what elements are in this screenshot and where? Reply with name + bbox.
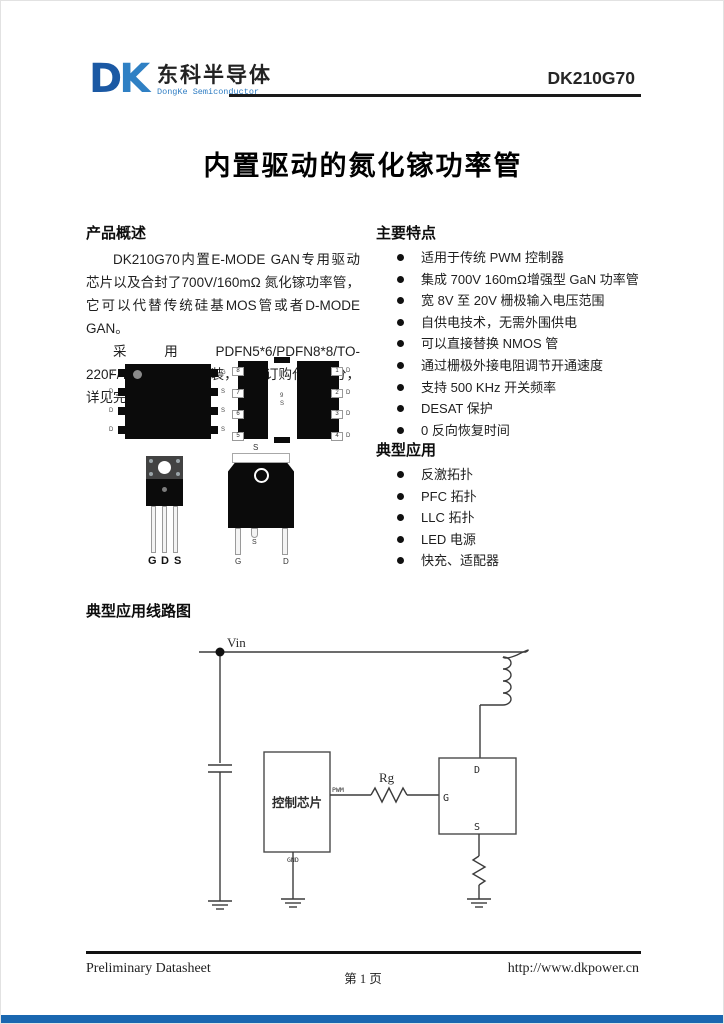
- to220-body-dot: [162, 487, 167, 492]
- pdfn-notch-bottom: [274, 437, 290, 443]
- bullet-icon: [397, 297, 404, 304]
- drain-pin-label: D: [474, 765, 480, 776]
- bullet-icon: [397, 319, 404, 326]
- to220-leg: [162, 506, 167, 553]
- feature-item: DESAT 保护: [394, 402, 676, 416]
- application-item: LLC 拓扑: [394, 511, 676, 525]
- pin1-dot-icon: [133, 370, 142, 379]
- to220-leg: [173, 506, 178, 553]
- logo-dk-icon: DK: [89, 56, 147, 102]
- to252-pin-label-d: D: [283, 557, 289, 566]
- to252-pin-label-g: G: [235, 557, 241, 566]
- pdfn-pin-label: D: [109, 426, 113, 434]
- pdfn-pin-label: D: [109, 407, 113, 415]
- circuit-heading: 典型应用线路图: [86, 600, 191, 621]
- center-pad-label: 9: [280, 393, 283, 400]
- to220-pin-label-s: S: [174, 555, 181, 567]
- to220-body: [146, 479, 183, 506]
- pad-number: 3: [331, 410, 343, 419]
- bullet-icon: [397, 471, 404, 478]
- to252-leg-s: [251, 528, 258, 538]
- pdfn-pin-label: D: [109, 388, 113, 396]
- source-pin-label: S: [474, 822, 480, 833]
- to220-corner-dot: [176, 459, 180, 463]
- feature-item: 集成 700V 160mΩ增强型 GaN 功率管: [394, 273, 676, 287]
- part-number: DK210G70: [547, 68, 635, 89]
- application-item: 快充、适配器: [394, 554, 676, 568]
- company-logo: DK: [89, 59, 147, 99]
- bullet-icon: [397, 254, 404, 261]
- datasheet-page: DK 东科半导体 DongKe Semiconductor DK210G70 内…: [0, 0, 724, 1024]
- pad-number: 5: [232, 432, 244, 441]
- pdfn-pin: [118, 369, 125, 377]
- to220-leg: [151, 506, 156, 553]
- bullet-icon: [397, 362, 404, 369]
- pad-letter: D: [346, 368, 350, 375]
- pdfn-pin: [211, 369, 218, 377]
- overview-paragraph-1: DK210G70内置E-MODE GAN专用驱动芯片以及合封了700V/160m…: [86, 248, 360, 340]
- to252-circle-mark-icon: [254, 468, 269, 483]
- center-pad-label: S: [280, 401, 284, 408]
- pad-letter: D: [346, 411, 350, 418]
- feature-item: 适用于传统 PWM 控制器: [394, 251, 676, 265]
- to220-pin-label-d: D: [161, 555, 169, 567]
- vin-node-dot: [216, 648, 225, 657]
- pdfn-pin: [118, 426, 125, 434]
- gate-pin-label: G: [443, 793, 449, 804]
- feature-item: 可以直接替换 NMOS 管: [394, 337, 676, 351]
- vin-label: Vin: [227, 635, 246, 650]
- to220-corner-dot: [149, 459, 153, 463]
- page-title: 内置驱动的氮化镓功率管: [1, 144, 724, 183]
- bullet-icon: [397, 276, 404, 283]
- footer-website-url: http://www.dkpower.cn: [508, 961, 639, 977]
- bullet-icon: [397, 557, 404, 564]
- header-rule: [229, 94, 641, 97]
- to252-leg-g: [235, 528, 241, 555]
- pdfn-pin-label: G: [221, 369, 226, 377]
- pdfn-pin-label: S: [221, 388, 225, 396]
- application-item: 反激拓扑: [394, 468, 676, 482]
- bullet-icon: [397, 493, 404, 500]
- bullet-icon: [397, 536, 404, 543]
- rg-label: Rg: [379, 770, 395, 785]
- feature-item: 宽 8V 至 20V 栅极输入电压范围: [394, 294, 676, 308]
- feature-item: 0 反向恢复时间: [394, 424, 676, 438]
- page-bottom-accent-bar: [1, 1015, 724, 1024]
- control-chip-label: 控制芯片: [272, 795, 322, 810]
- applications-list: 反激拓扑 PFC 拓扑 LLC 拓扑 LED 电源 快充、适配器: [394, 468, 676, 576]
- pdfn-pin: [118, 407, 125, 415]
- to220-pin-label-g: G: [148, 555, 157, 567]
- overview-heading: 产品概述: [86, 222, 146, 243]
- to220-mount-hole-icon: [158, 461, 171, 474]
- pdfn-pin: [118, 388, 125, 396]
- application-item: PFC 拓扑: [394, 490, 676, 504]
- gnd-pin-label: GND: [287, 856, 299, 864]
- to220-corner-dot: [149, 472, 153, 476]
- pdfn-pin: [211, 407, 218, 415]
- to252-tab: [232, 453, 290, 463]
- bullet-icon: [397, 384, 404, 391]
- feature-item: 自供电技术，无需外围供电: [394, 316, 676, 330]
- features-list: 适用于传统 PWM 控制器 集成 700V 160mΩ增强型 GaN 功率管 宽…: [394, 251, 676, 445]
- to252-pin-label-s: S: [252, 539, 257, 546]
- to220-corner-dot: [176, 472, 180, 476]
- company-name-block: 东科半导体 DongKe Semiconductor: [157, 65, 272, 97]
- bullet-icon: [397, 405, 404, 412]
- application-circuit-diagram: Vin 控制芯片 PWM GND Rg D G S: [181, 631, 551, 923]
- pad-number: 2: [331, 389, 343, 398]
- pdfn-pin-label: S: [221, 426, 225, 434]
- pdfn-pin-label: S: [221, 407, 225, 415]
- pad-number: 6: [232, 410, 244, 419]
- pwm-pin-label: PWM: [332, 786, 344, 794]
- features-heading: 主要特点: [376, 222, 436, 243]
- footer-rule: [86, 951, 641, 954]
- pdfn-notch-top: [274, 357, 290, 363]
- pad-number: 4: [331, 432, 343, 441]
- to252-leg-d: [282, 528, 288, 555]
- pad-number: 7: [232, 389, 244, 398]
- company-name-cn: 东科半导体: [157, 65, 272, 87]
- to252-tab-label: S: [253, 443, 258, 452]
- bullet-icon: [397, 514, 404, 521]
- bullet-icon: [397, 340, 404, 347]
- pad-letter: D: [346, 390, 350, 397]
- feature-item: 通过栅极外接电阻调节开通速度: [394, 359, 676, 373]
- pdfn-pin-label: D: [109, 369, 113, 377]
- pdfn-pin: [211, 388, 218, 396]
- bullet-icon: [397, 427, 404, 434]
- pad-number: 8: [232, 367, 244, 376]
- feature-item: 支持 500 KHz 开关频率: [394, 381, 676, 395]
- pad-letter: D: [346, 433, 350, 440]
- pad-number: 1: [331, 367, 343, 376]
- application-item: LED 电源: [394, 533, 676, 547]
- pdfn-pin: [211, 426, 218, 434]
- applications-heading: 典型应用: [376, 439, 436, 460]
